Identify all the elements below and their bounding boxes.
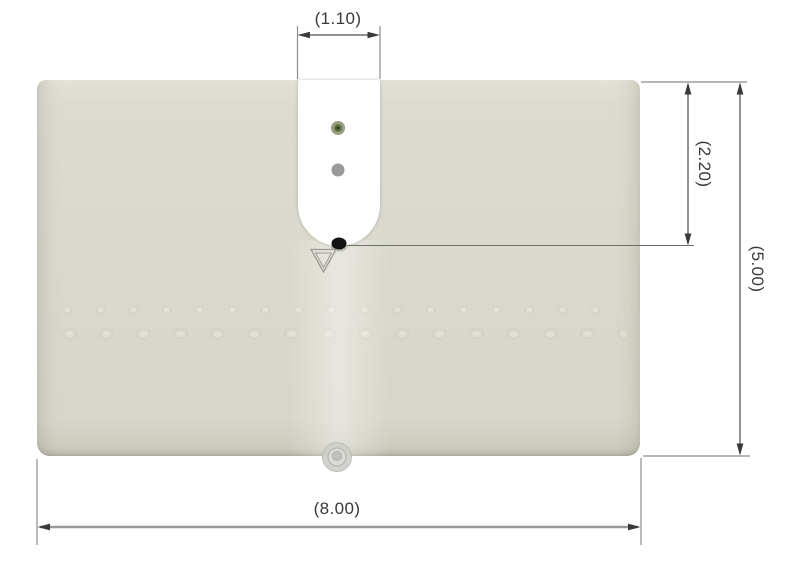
arrow-left-icon (298, 32, 311, 39)
arrow-left-icon (38, 524, 51, 531)
arrow-down-icon (737, 444, 744, 456)
arrow-up-icon (737, 83, 744, 95)
arrow-up-icon (685, 83, 692, 95)
dim-label-slot-depth: (2.20) (694, 141, 714, 188)
arrow-right-icon (628, 524, 641, 531)
arrow-down-icon (685, 234, 692, 246)
drawing-canvas: (1.10) (2.20) (5.00) (8.00) (0, 0, 801, 569)
dim-label-plate-height: (5.00) (747, 246, 767, 293)
slot-cutout (298, 80, 380, 246)
center-highlight-band (289, 240, 389, 456)
dim-label-plate-width: (8.00) (314, 499, 361, 519)
dim-label-slot-width: (1.10) (315, 9, 362, 29)
arrow-right-icon (368, 32, 381, 39)
